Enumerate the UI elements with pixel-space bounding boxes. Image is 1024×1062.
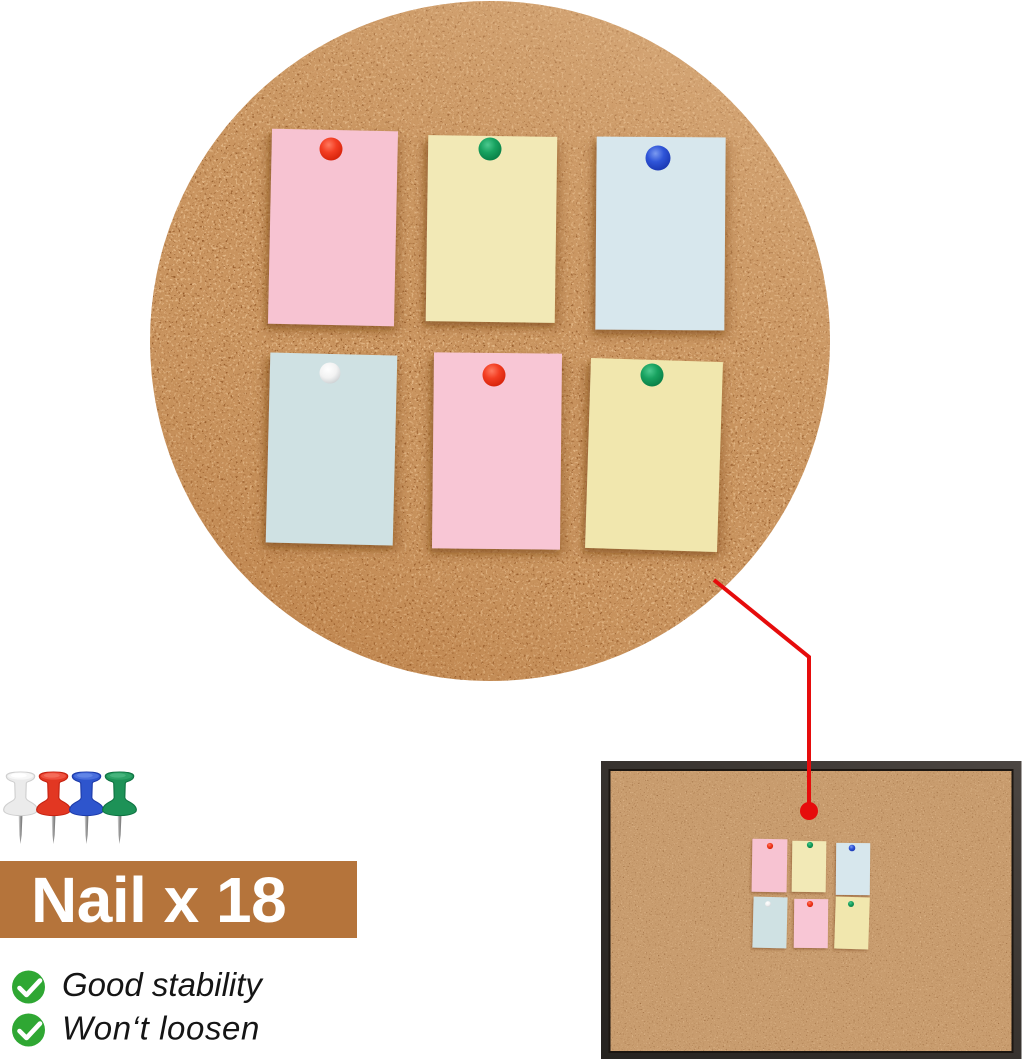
svg-text:Nail x 18: Nail x 18 bbox=[31, 864, 286, 936]
svg-text:Good stability: Good stability bbox=[62, 966, 264, 1003]
svg-text:Won‘t loosen: Won‘t loosen bbox=[62, 1010, 260, 1047]
